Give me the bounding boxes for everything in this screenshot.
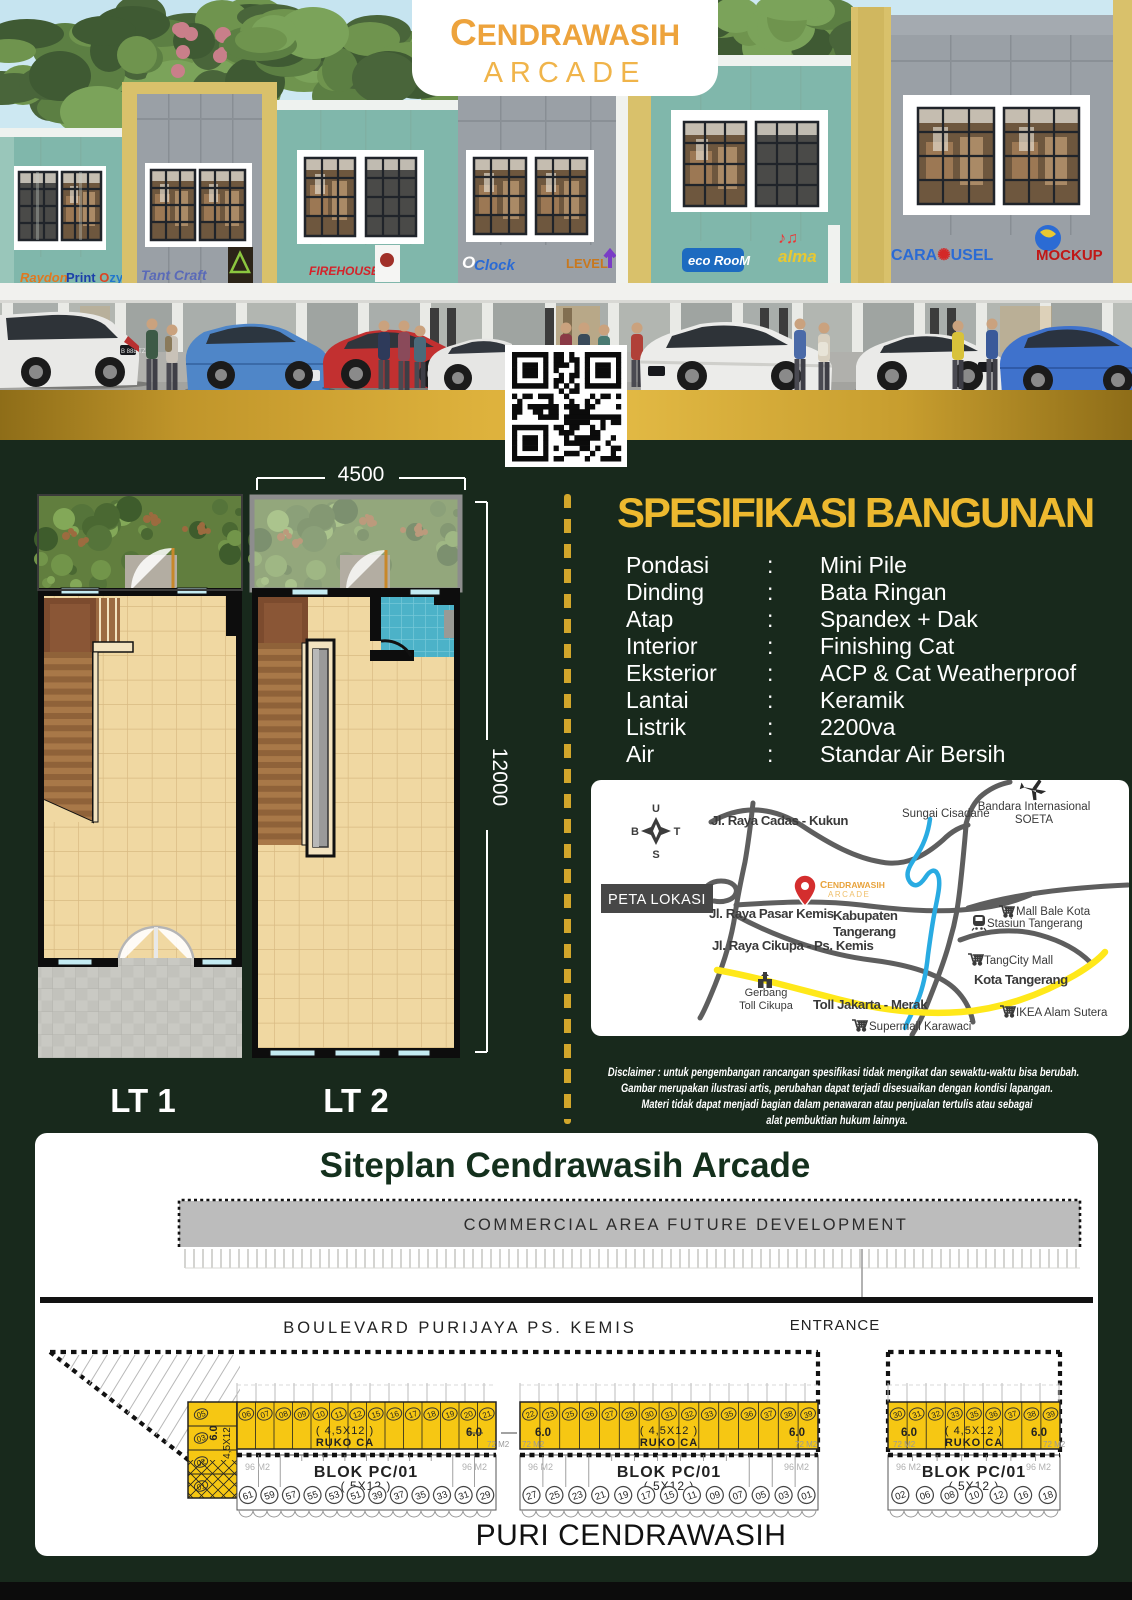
svg-text:Bandara Internasional: Bandara Internasional [978,801,1091,813]
svg-text:72 M2: 72 M2 [893,1440,916,1449]
svg-text:Clock: Clock [474,257,516,274]
svg-text:72 M2: 72 M2 [522,1440,545,1449]
svg-text:( 4,5X12 ): ( 4,5X12 ) [640,1425,698,1437]
svg-text:RUKO CA: RUKO CA [945,1437,1003,1449]
svg-text:72 M2: 72 M2 [487,1440,510,1449]
svg-text:B 888 TZ: B 888 TZ [121,349,146,355]
svg-text:Gerbang: Gerbang [745,987,788,999]
svg-text:6.0: 6.0 [1031,1427,1047,1439]
svg-text:FIREHOUSE: FIREHOUSE [309,264,380,278]
svg-text:Jl. Raya Pasar Kemis: Jl. Raya Pasar Kemis [709,906,834,921]
svg-text:T: T [674,826,681,838]
svg-text:96 M2: 96 M2 [896,1462,921,1472]
svg-text:72 M2: 72 M2 [795,1440,818,1449]
svg-text:6.0: 6.0 [208,1425,220,1440]
svg-text:6.0: 6.0 [901,1427,917,1439]
svg-text:SOETA: SOETA [1015,814,1053,826]
svg-text:RUKO CA: RUKO CA [640,1437,698,1449]
svg-text:Supermall Karawaci: Supermall Karawaci [869,1021,971,1033]
svg-text:Siteplan Cendrawasih Arcade: Siteplan Cendrawasih Arcade [320,1146,811,1185]
svg-text:U: U [652,803,660,815]
svg-text:PURI CENDRAWASIH: PURI CENDRAWASIH [476,1519,787,1552]
svg-text:Print Ozy: Print Ozy [66,270,124,285]
svg-text:96 M2: 96 M2 [784,1462,809,1472]
svg-text:Toll Jakarta - Merak: Toll Jakarta - Merak [813,997,928,1012]
svg-text:IKEA Alam Sutera: IKEA Alam Sutera [1016,1007,1108,1019]
svg-text:LT 1: LT 1 [110,1082,175,1119]
svg-text:COMMERCIAL AREA FUTURE DEVE: COMMERCIAL AREA FUTURE DEVELOPMENT [464,1216,909,1234]
svg-text:S: S [652,849,659,861]
svg-text:Jl. Raya Cikupa - Ps. Kemis: Jl. Raya Cikupa - Ps. Kemis [712,938,874,953]
svg-text:LT 2: LT 2 [323,1082,388,1119]
svg-text:96 M2: 96 M2 [1026,1462,1051,1472]
svg-text:96 M2: 96 M2 [245,1462,270,1472]
svg-text:Kabupaten: Kabupaten [833,908,898,923]
svg-text:12000: 12000 [488,748,511,806]
svg-text:Toll Cikupa: Toll Cikupa [739,1000,794,1012]
svg-text:Jl. Raya Cadas - Kukun: Jl. Raya Cadas - Kukun [711,813,848,828]
svg-text:ENTRANCE: ENTRANCE [790,1317,881,1334]
svg-text:Mall Bale Kota: Mall Bale Kota [1016,906,1091,918]
svg-text:♪♫: ♪♫ [778,230,798,247]
svg-text:Stasiun Tangerang: Stasiun Tangerang [987,918,1083,930]
svg-text:4,5X12: 4,5X12 [222,1427,233,1459]
svg-text:PETA LOKASI: PETA LOKASI [608,892,706,908]
svg-text:TangCity Mall: TangCity Mall [984,955,1053,967]
svg-text:Kota Tangerang: Kota Tangerang [974,972,1068,987]
svg-text:72 M2: 72 M2 [1043,1440,1066,1449]
svg-text:BOULEVARD PURIJAYA PS. KEMI: BOULEVARD PURIJAYA PS. KEMIS [283,1319,637,1337]
svg-text:6.0: 6.0 [789,1427,805,1439]
svg-text:LEVEL: LEVEL [566,256,608,271]
svg-text:eco RooM: eco RooM [688,253,751,268]
svg-text:6.0: 6.0 [535,1427,551,1439]
svg-text:RUKO CA: RUKO CA [316,1437,374,1449]
svg-text:Tant Craft: Tant Craft [141,267,208,283]
svg-text:Tangerang: Tangerang [833,924,896,939]
svg-text:B: B [631,826,639,838]
svg-text:96 M2: 96 M2 [462,1462,487,1472]
svg-text:ARCADE: ARCADE [828,890,870,899]
svg-text:MOCKUP: MOCKUP [1036,247,1103,264]
svg-text:Sungai Cisadane: Sungai Cisadane [902,808,990,820]
svg-text:CARA✺USEL: CARA✺USEL [891,247,994,264]
svg-text:96 M2: 96 M2 [528,1462,553,1472]
svg-text:alma: alma [778,247,817,266]
svg-text:Raydon: Raydon [20,270,68,285]
svg-text:( 4,5X12 ): ( 4,5X12 ) [316,1425,374,1437]
svg-text:( 4,5X12 ): ( 4,5X12 ) [945,1425,1003,1437]
svg-text:4500: 4500 [338,463,385,486]
